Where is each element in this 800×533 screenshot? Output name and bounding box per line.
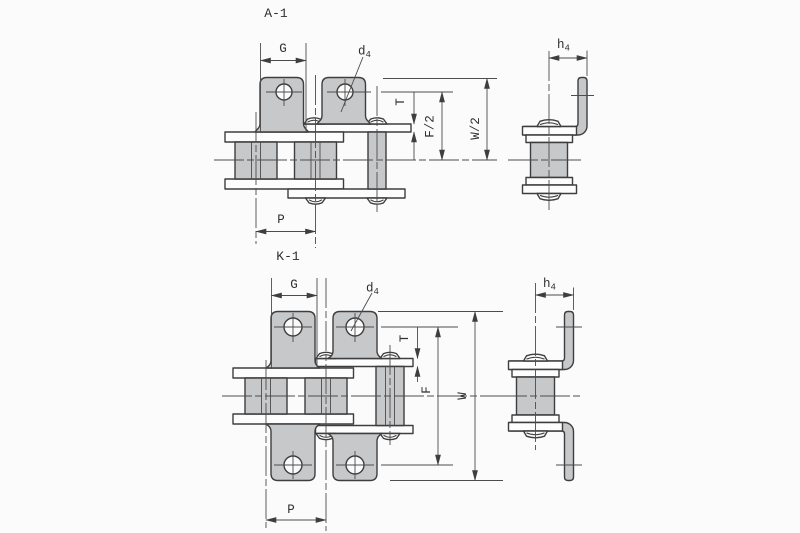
k1-dim-label-f: F: [420, 386, 434, 394]
k1-title: K-1: [276, 249, 300, 264]
a1-dim-label-g: G: [279, 42, 287, 56]
k1-view: K-1 G d4 T F W h4 P: [222, 249, 582, 531]
a1-dim-label-w2: W/2: [469, 117, 483, 140]
k1-pinlink-plate-bottom: [316, 426, 414, 434]
a1-dim-label-p: P: [277, 213, 285, 227]
a1-dim-label-f2: F/2: [424, 115, 438, 138]
a1-front-view: [225, 78, 411, 205]
k1-dim-label-d4: d4: [366, 282, 379, 298]
k1-dim-label-w: W: [456, 392, 470, 400]
k1-side-view: [497, 283, 582, 481]
k1-rollerlink-plate-bottom: [233, 414, 354, 424]
a1-title: A-1: [264, 6, 288, 21]
k1-dim-label-h4: h4: [543, 277, 556, 293]
a1-view: A-1 G d4 T F/2 W/2 h4 P: [214, 6, 594, 248]
technical-drawing-page: A-1 G d4 T F/2 W/2 h4 P: [0, 0, 800, 533]
a1-dim-label-t: T: [394, 98, 408, 106]
a1-pinlink-plate-bottom: [288, 189, 405, 198]
a1-dim-label-h4: h4: [557, 38, 570, 54]
k1-dim-label-p: P: [287, 503, 295, 517]
a1-rollerlink-plate-bottom: [225, 179, 344, 189]
chain-attachment-drawing: A-1 G d4 T F/2 W/2 h4 P: [0, 0, 800, 533]
a1-rollerlink-plate-top: [225, 132, 344, 142]
a1-side-view: [508, 51, 594, 213]
k1-pinlink-plate-top: [316, 359, 414, 367]
a1-dim-label-d4: d4: [358, 45, 371, 61]
a1-side-plate-outer-bottom: [523, 185, 577, 194]
k1-dim-label-t: T: [398, 334, 412, 342]
k1-rollerlink-plate-top: [233, 368, 354, 378]
k1-dim-label-g: G: [290, 278, 298, 292]
a1-side-plate-outer-top: [523, 127, 577, 136]
a1-pinlink-plate-top: [304, 124, 412, 132]
